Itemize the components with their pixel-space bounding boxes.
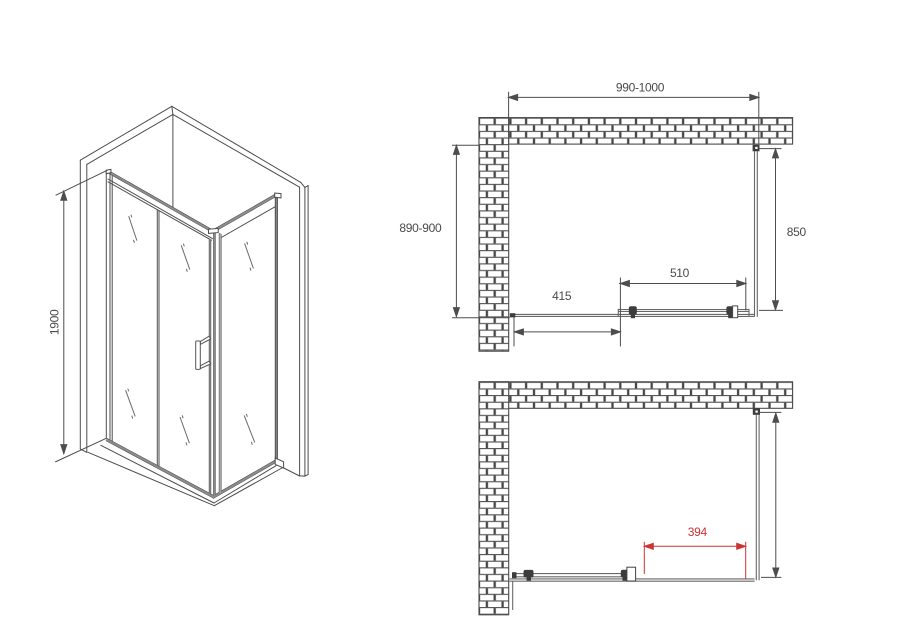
svg-text:890-900: 890-900 (399, 221, 442, 235)
svg-text:1900: 1900 (48, 309, 62, 335)
svg-text:850: 850 (787, 225, 807, 239)
svg-text:510: 510 (670, 266, 690, 280)
svg-text:990-1000: 990-1000 (616, 81, 665, 95)
svg-text:394: 394 (688, 525, 708, 539)
svg-text:415: 415 (552, 289, 572, 303)
